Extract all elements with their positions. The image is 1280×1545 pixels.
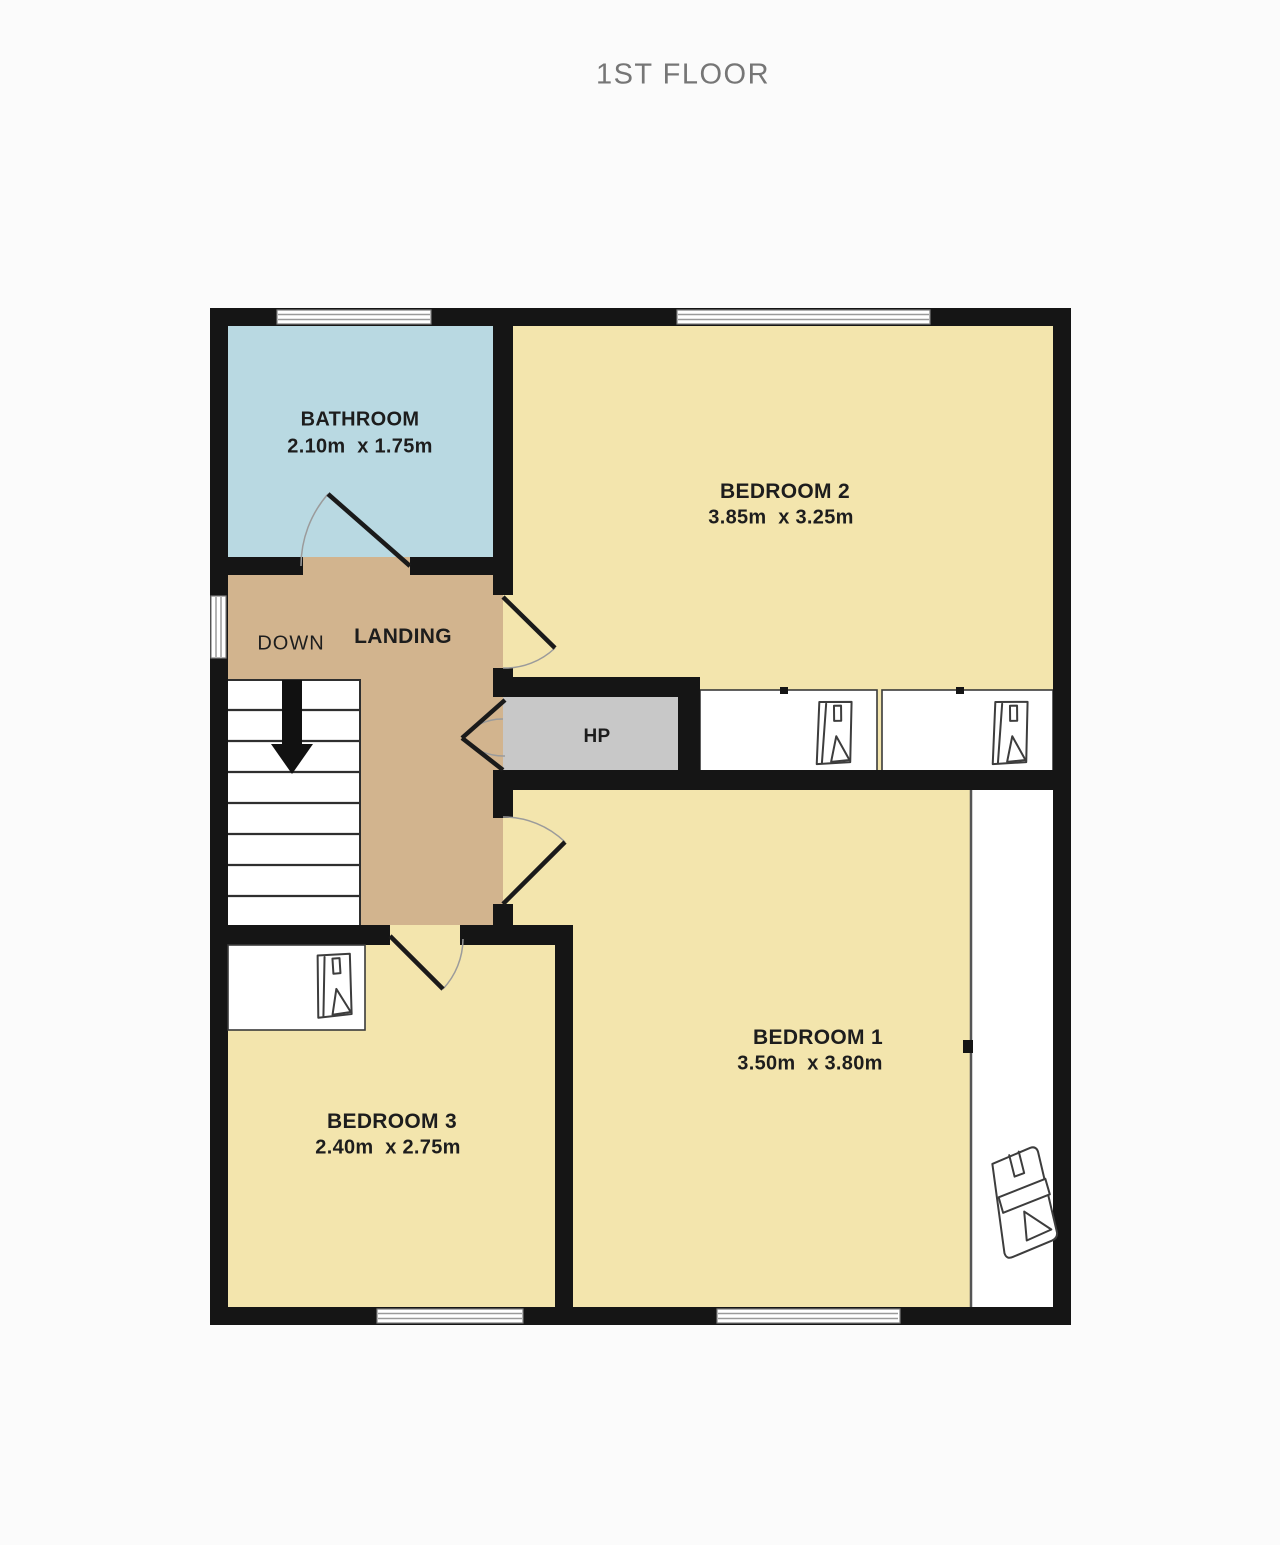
hot-press-wall-top: [493, 677, 700, 697]
landing-bedroom2-wall-upper: [493, 326, 513, 595]
bedroom3-name-label: BEDROOM 3: [327, 1110, 457, 1134]
outer-wall-right: [1053, 308, 1071, 1325]
bedroom1-window: [717, 1309, 900, 1323]
bathroom-landing-wall-left: [210, 557, 303, 575]
bathroom-dims-label: 2.10m x 1.75m: [287, 436, 432, 459]
bedroom3-dims-label: 2.40m x 2.75m: [315, 1137, 460, 1160]
bedroom2-dims-label: 3.85m x 3.25m: [708, 507, 853, 530]
wardrobe-icon: [313, 952, 356, 1020]
wardrobe-icon: [812, 698, 858, 768]
floor-plan-drawing: [0, 0, 1280, 1545]
wardrobe-door-mark-1: [780, 687, 788, 694]
landing-window: [211, 596, 226, 658]
outer-wall-bottom: [210, 1307, 1071, 1325]
bedroom1-dims-label: 3.50m x 3.80m: [737, 1053, 882, 1076]
bathroom-name-label: BATHROOM: [301, 409, 420, 432]
bedroom1-wall-top: [493, 770, 1071, 790]
bedroom2-name-label: BEDROOM 2: [720, 480, 850, 504]
bathroom-window: [277, 310, 431, 324]
down-label: DOWN: [257, 633, 324, 656]
bedroom3-window: [377, 1309, 523, 1323]
wardrobe-icon: [988, 698, 1034, 768]
outer-wall-left: [210, 308, 228, 1325]
landing-name-label: LANDING: [354, 625, 452, 649]
wardrobe-door-mark-2: [956, 687, 964, 694]
hot-press-label: HP: [584, 726, 611, 748]
page-title: 1ST FLOOR: [596, 59, 770, 92]
bedroom1-name-label: BEDROOM 1: [753, 1026, 883, 1050]
bedroom3-wall-top-left: [210, 925, 390, 945]
bedroom3-bedroom1-wall: [555, 925, 573, 1325]
floor-plan: 1ST FLOOR BATHROOM 2.10m x 1.75m BEDROOM…: [0, 0, 1280, 1545]
bedroom2-window: [677, 310, 930, 324]
closet-jamb-mark: [963, 1040, 973, 1053]
landing-bedroom1-wall-upper: [493, 770, 513, 818]
